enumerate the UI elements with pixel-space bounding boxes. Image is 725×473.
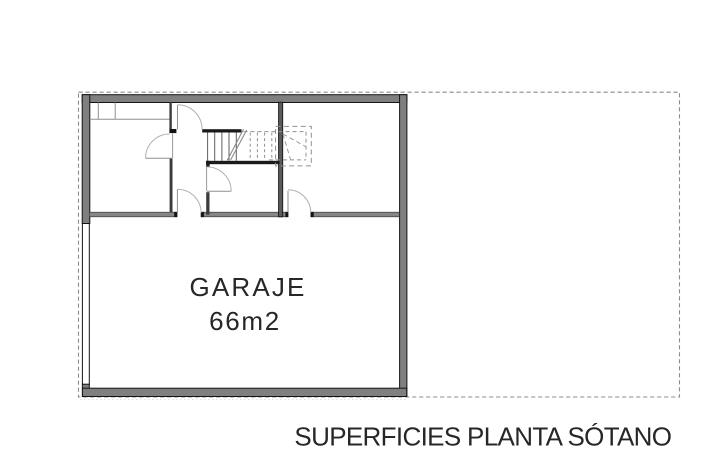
- svg-text:GARAJE: GARAJE: [190, 272, 307, 302]
- svg-text:SUPERFICIES PLANTA SÓTANO: SUPERFICIES PLANTA SÓTANO: [294, 422, 671, 452]
- svg-text:66m2: 66m2: [209, 306, 281, 336]
